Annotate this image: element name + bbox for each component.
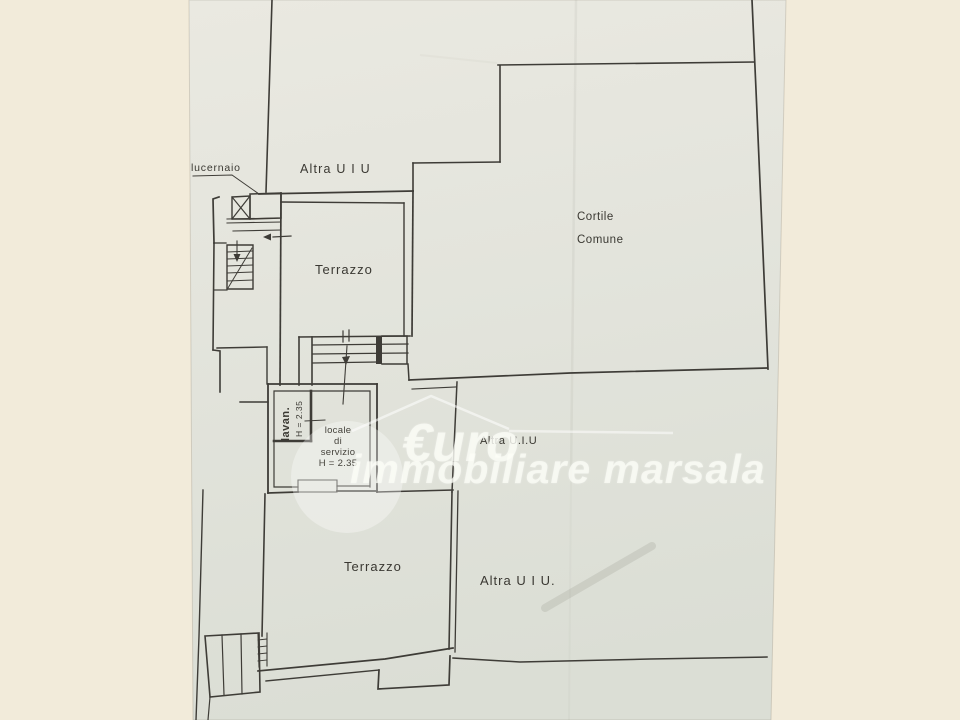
label-terrazzo-upper: Terrazzo (315, 262, 373, 277)
label-altra-uiu-bottom: Altra U I U. (480, 573, 556, 588)
label-locale-height: H = 2.35 (308, 458, 368, 469)
label-locale-line2: di (308, 436, 368, 447)
label-altra-uiu-top: Altra U I U (300, 162, 371, 176)
scanned-floorplan-page: lucernaio Altra U I U Cortile Comune Ter… (0, 0, 960, 720)
floorplan-drawing (0, 0, 960, 720)
wall-pier (376, 336, 382, 364)
label-locale-line1: locale (308, 425, 368, 436)
label-lavan: lavan. (280, 407, 292, 441)
label-locale-line3: servizio (308, 447, 368, 458)
label-lucernaio: lucernaio (191, 162, 241, 174)
label-altra-uiu-mid: Altra U.I.U (480, 435, 537, 447)
label-lavan-height: H = 2.35 (294, 401, 304, 437)
label-terrazzo-lower: Terrazzo (344, 559, 402, 574)
paper-sheet (189, 0, 786, 720)
label-locale-di-servizio: locale di servizio H = 2.35 (308, 425, 368, 469)
label-comune: Comune (577, 234, 623, 246)
label-cortile: Cortile (577, 211, 614, 223)
